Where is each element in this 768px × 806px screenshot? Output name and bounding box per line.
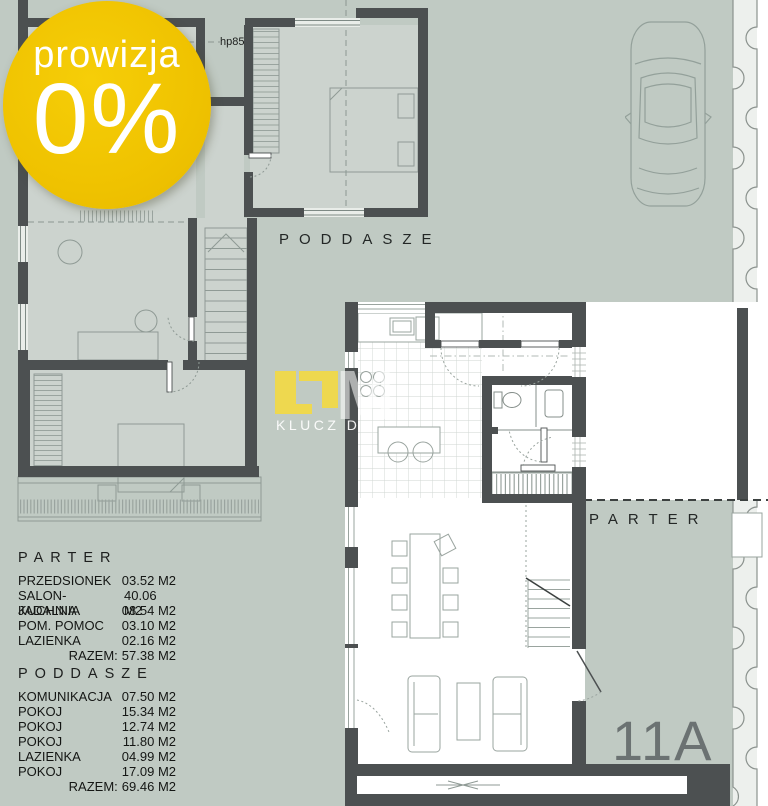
badge-percent: 0%: [3, 69, 211, 169]
table-row: LAZIENKA 02.16 M2: [18, 633, 176, 648]
room-label: POM. POMOC: [18, 618, 104, 633]
commission-badge: prowizja 0%: [3, 1, 211, 209]
room-label: KOMUNIKACJA: [18, 689, 112, 704]
room-label: POKOJ: [18, 719, 62, 734]
room-area: 40.06 M2: [124, 588, 176, 603]
upper-plan-label: PODDASZE: [279, 231, 442, 248]
total-area: 57.38 M2: [122, 648, 176, 663]
parter-area-table: PARTER PRZEDSIONEK 03.52 M2 SALON-JADALN…: [18, 551, 176, 663]
room-label: LAZIENKA: [18, 633, 81, 648]
table-row: LAZIENKA 04.99 M2: [18, 749, 176, 764]
room-label: SALON-JADALNIA: [18, 588, 124, 603]
room-label: KUCHNIA: [18, 603, 77, 618]
car-icon: [625, 18, 715, 213]
table-total-row: RAZEM: 57.38 M2: [18, 648, 176, 663]
room-area: 17.09 M2: [122, 764, 176, 779]
room-label: PRZEDSIONEK: [18, 573, 111, 588]
room-label: POKOJ: [18, 734, 62, 749]
listing-floorplan-image: M KLUCZ DO prowizja 0% hp85 PODDASZE PAR…: [0, 0, 768, 806]
room-area: 15.34 M2: [122, 704, 176, 719]
room-area: 08.54 M2: [122, 603, 176, 618]
room-label: POKOJ: [18, 704, 62, 719]
table-total-row: RAZEM: 69.46 M2: [18, 779, 176, 794]
room-area: 03.10 M2: [122, 618, 176, 633]
table-row: KUCHNIA 08.54 M2: [18, 603, 176, 618]
poddasze-table-title: PODDASZE: [18, 667, 176, 682]
room-area: 04.99 M2: [122, 749, 176, 764]
height-note-label: hp85: [220, 36, 244, 48]
room-area: 11.80 M2: [123, 734, 176, 749]
room-label: LAZIENKA: [18, 749, 81, 764]
table-row: KOMUNIKACJA 07.50 M2: [18, 689, 176, 704]
total-label: RAZEM:: [69, 648, 118, 663]
parter-table-title: PARTER: [18, 551, 176, 566]
watermark-logo-icon: [268, 368, 340, 418]
lower-plan-label: PARTER: [589, 511, 708, 528]
poddasze-area-table: PODDASZE KOMUNIKACJA 07.50 M2 POKOJ 15.3…: [18, 667, 176, 794]
table-row: POKOJ 17.09 M2: [18, 764, 176, 779]
room-area: 12.74 M2: [122, 719, 176, 734]
table-row: POKOJ 12.74 M2: [18, 719, 176, 734]
table-row: PRZEDSIONEK 03.52 M2: [18, 573, 176, 588]
table-row: POM. POMOC 03.10 M2: [18, 618, 176, 633]
room-area: 03.52 M2: [122, 573, 176, 588]
room-area: 02.16 M2: [122, 633, 176, 648]
unit-number-label: 11A: [612, 708, 713, 773]
table-row: POKOJ 15.34 M2: [18, 704, 176, 719]
watermark-tagline: KLUCZ DO: [276, 417, 375, 433]
room-area: 07.50 M2: [122, 689, 176, 704]
total-label: RAZEM:: [69, 779, 118, 794]
total-area: 69.46 M2: [122, 779, 176, 794]
table-row: SALON-JADALNIA 40.06 M2: [18, 588, 176, 603]
table-row: POKOJ 11.80 M2: [18, 734, 176, 749]
room-label: POKOJ: [18, 764, 62, 779]
